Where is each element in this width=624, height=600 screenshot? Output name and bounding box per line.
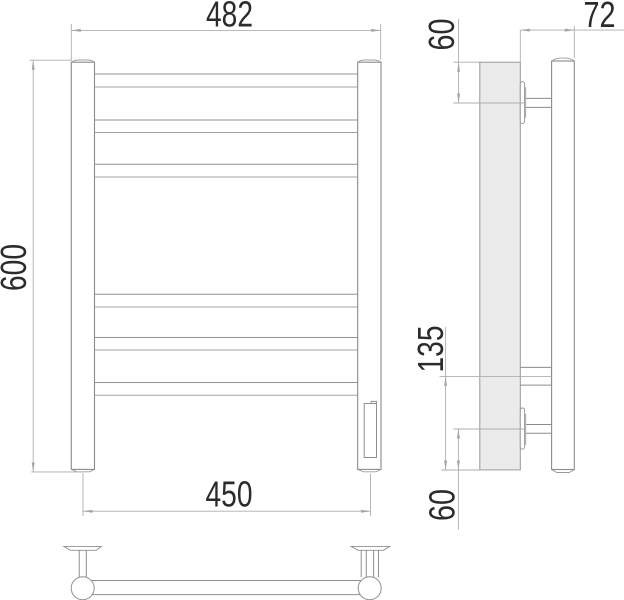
- svg-text:60: 60: [422, 489, 463, 521]
- svg-text:482: 482: [206, 0, 253, 35]
- svg-text:60: 60: [421, 19, 462, 51]
- svg-text:72: 72: [584, 0, 616, 35]
- svg-text:600: 600: [0, 244, 34, 291]
- svg-text:450: 450: [206, 473, 253, 514]
- svg-text:135: 135: [410, 326, 451, 373]
